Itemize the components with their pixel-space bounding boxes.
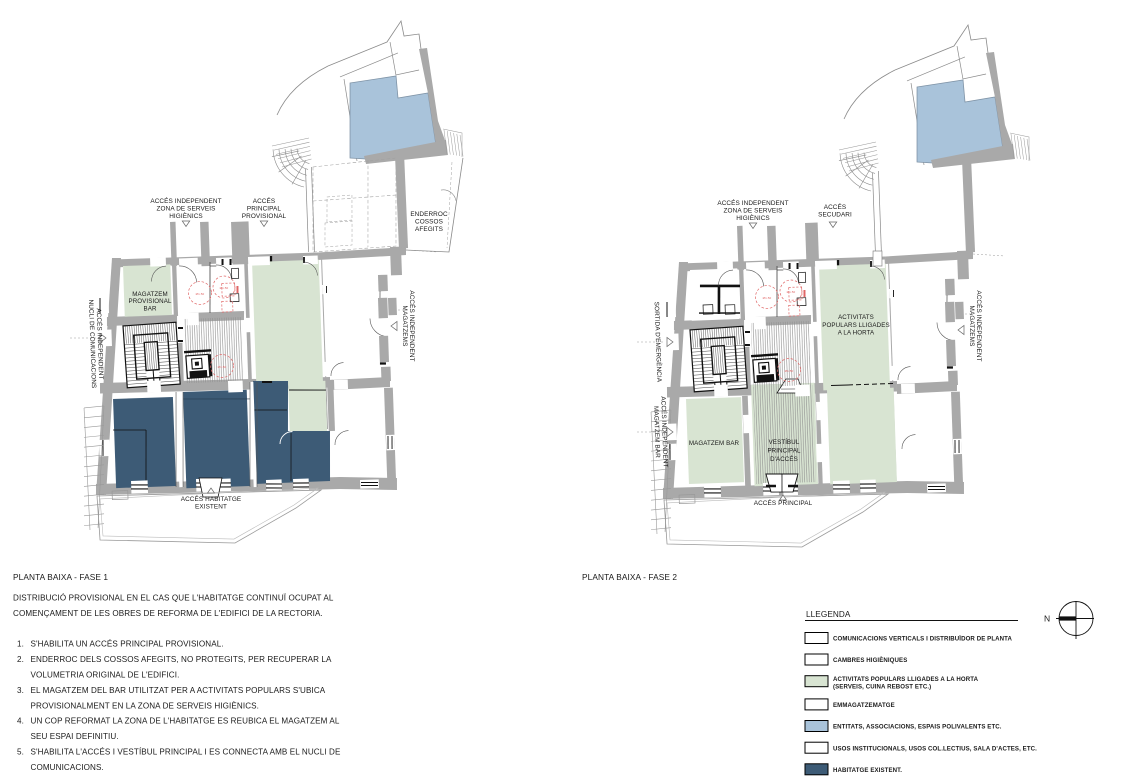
svg-text:VOLUMETRIA ORIGINAL DE L'EDIFI: VOLUMETRIA ORIGINAL DE L'EDIFICI.	[31, 671, 180, 680]
svg-text:EL MAGATZEM DEL BAR UTILITZAT: EL MAGATZEM DEL BAR UTILITZAT PER A ACTI…	[31, 686, 326, 695]
svg-text:VESTÍBULPRINCIPALD'ACCÉS: VESTÍBULPRINCIPALD'ACCÉS	[767, 439, 801, 463]
svg-text:ACCÉS INDEPENDENT: ACCÉS INDEPENDENT	[975, 290, 984, 361]
svg-text:CAMBRES HIGIÈNIQUES: CAMBRES HIGIÈNIQUES	[833, 656, 907, 664]
svg-text:UN COP REFORMAT LA ZONA DE L'H: UN COP REFORMAT LA ZONA DE L'HABITATGE E…	[31, 717, 340, 726]
svg-text:DISTRIBUCIÓ PROVISIONAL EN EL: DISTRIBUCIÓ PROVISIONAL EN EL CAS QUE L'…	[13, 594, 334, 603]
svg-text:LLEGENDA: LLEGENDA	[806, 610, 851, 619]
svg-text:S'HABILITA L'ACCÉS I VESTÍBUL: S'HABILITA L'ACCÉS I VESTÍBUL PRINCIPAL …	[31, 748, 341, 757]
svg-text:Ø1.50: Ø1.50	[218, 365, 227, 369]
svg-text:COMUNICACIONS VERTICALS I DIS: COMUNICACIONS VERTICALS I DISTRIBUÏDOR D…	[833, 636, 1013, 643]
svg-text:ENDERROC DELS COSSOS AFEGITS,: ENDERROC DELS COSSOS AFEGITS, NO PROTEGI…	[31, 655, 333, 664]
svg-text:ACCÉS INDEPENDENT: ACCÉS INDEPENDENT	[408, 290, 417, 361]
svg-text:5.: 5.	[17, 748, 24, 757]
svg-text:ENDERROCCOSSOSAFEGITS: ENDERROCCOSSOSAFEGITS	[410, 211, 448, 233]
svg-text:3.: 3.	[17, 686, 24, 695]
svg-text:2.: 2.	[17, 655, 24, 664]
svg-text:SEU ESPAI DEFINITIU.: SEU ESPAI DEFINITIU.	[31, 732, 119, 741]
svg-text:ACTIVITATS POPULARS LLIGADES A: ACTIVITATS POPULARS LLIGADES A LA HORTA	[833, 676, 979, 683]
svg-text:Ø1.50: Ø1.50	[196, 292, 205, 296]
svg-text:USOS INSTITUCIONALS, USOS COL.: USOS INSTITUCIONALS, USOS COL.LECTIUS, S…	[833, 745, 1037, 752]
svg-text:COMENÇAMENT DE LES OBRES DE RE: COMENÇAMENT DE LES OBRES DE REFORMA DE L…	[13, 609, 323, 618]
svg-text:Ø1.50: Ø1.50	[787, 290, 796, 294]
svg-text:MAGATZEM BAR: MAGATZEM BAR	[689, 440, 740, 447]
svg-text:1.: 1.	[17, 640, 24, 649]
svg-text:EMMAGATZEMATGE: EMMAGATZEMATGE	[833, 702, 895, 709]
svg-text:HABITATGE EXISTENT.: HABITATGE EXISTENT.	[833, 767, 902, 774]
svg-text:PLANTA BAIXA - FASE 2: PLANTA BAIXA - FASE 2	[582, 572, 677, 582]
svg-text:PROVISIONALMENT EN LA ZONA DE: PROVISIONALMENT EN LA ZONA DE SERVEIS HI…	[31, 701, 260, 710]
svg-text:COMUNICACIONS.: COMUNICACIONS.	[31, 763, 104, 772]
svg-text:N: N	[1044, 614, 1050, 624]
svg-text:Ø1.50: Ø1.50	[785, 369, 794, 373]
svg-text:ENTITATS, ASSOCIACIONS, ESPAIS: ENTITATS, ASSOCIACIONS, ESPAIS POLIVALEN…	[833, 724, 1002, 731]
svg-text:Ø1.50: Ø1.50	[220, 286, 229, 290]
svg-text:Ø1.50: Ø1.50	[763, 296, 772, 300]
svg-text:MAGATZEMS: MAGATZEMS	[401, 306, 408, 347]
svg-text:PLANTA BAIXA - FASE 1: PLANTA BAIXA - FASE 1	[13, 572, 108, 582]
svg-text:(SERVEIS, CUINA REBOST ETC.): (SERVEIS, CUINA REBOST ETC.)	[833, 683, 931, 690]
svg-text:S'HABILITA UN ACCÉS PRINCIPAL: S'HABILITA UN ACCÉS PRINCIPAL PROVISIONA…	[31, 640, 224, 649]
svg-text:4.: 4.	[17, 717, 24, 726]
svg-text:MAGATZEMS: MAGATZEMS	[968, 306, 975, 347]
